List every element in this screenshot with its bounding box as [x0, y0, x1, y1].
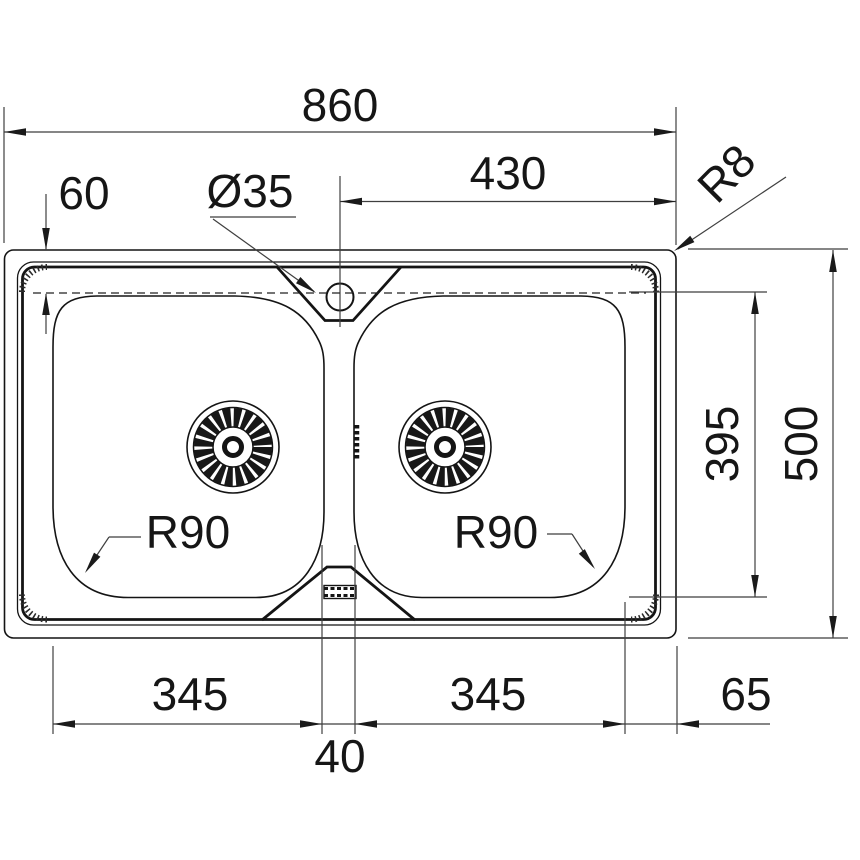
dim-outer-corner-radius-label: R8	[687, 134, 765, 212]
saddle-overflow-hatch	[324, 586, 356, 599]
sink-technical-drawing-canvas: 860 430 60 Ø35 R8 395	[0, 0, 860, 860]
dim-faucet-hole-diameter-label: Ø35	[207, 165, 294, 217]
left-drain-center-bolt	[225, 439, 242, 456]
dimension-left-bowl-radius: R90	[85, 506, 230, 573]
dim-overall-width-label: 860	[302, 79, 379, 131]
dim-left-bowl-width-label: 345	[152, 668, 229, 720]
dim-faucet-offset-label: 430	[470, 147, 547, 199]
left-drain	[187, 401, 279, 493]
dim-bowl-length-label: 395	[696, 406, 748, 483]
dim-left-bowl-radius-label: R90	[146, 506, 230, 558]
dimension-bowl-length: 395	[629, 292, 767, 597]
dimension-right-bowl-radius: R90	[454, 506, 595, 569]
dim-right-bowl-width-label: 345	[450, 668, 527, 720]
dimension-bottom-row: 345 345 40 65	[53, 545, 772, 782]
right-drain-center-bolt	[437, 439, 454, 456]
sink-bowls	[53, 296, 625, 598]
dim-edge-to-bowl-top-label: 60	[58, 167, 109, 219]
dimension-outer-corner-radius: R8	[674, 134, 786, 251]
dim-center-gap-label: 40	[314, 730, 365, 782]
right-drain	[399, 401, 491, 493]
bottom-saddle	[262, 567, 415, 620]
dim-right-bowl-radius-label: R90	[454, 506, 538, 558]
dimension-faucet-offset: 430	[340, 147, 676, 205]
sink-drawing-svg: 860 430 60 Ø35 R8 395	[0, 0, 860, 860]
sink-rim-outer-line	[18, 262, 661, 625]
dim-overall-depth-label: 500	[775, 406, 827, 483]
dimension-faucet-hole-diameter: Ø35	[207, 165, 316, 293]
dim-bowl-to-edge-label: 65	[720, 668, 771, 720]
faucet-hole	[327, 176, 354, 327]
